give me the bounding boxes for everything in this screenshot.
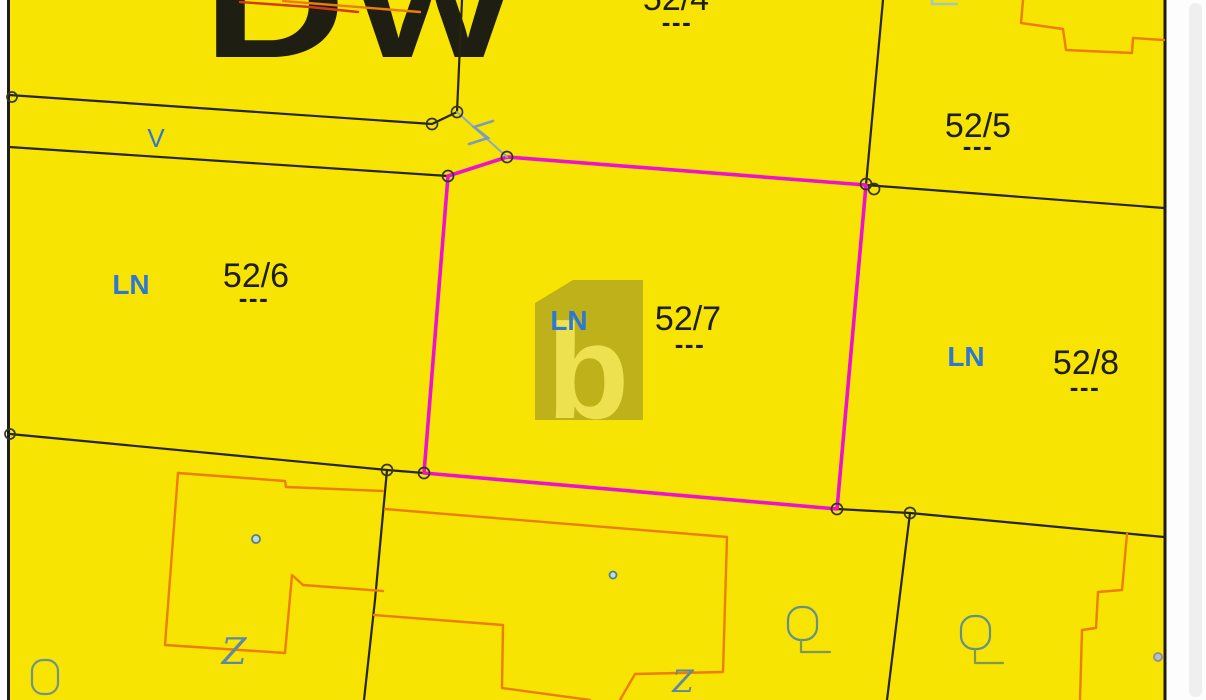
parcel-landuse-52-8: LN — [947, 341, 984, 372]
sheet-border-left — [7, 0, 10, 700]
sheet-border-right — [1164, 0, 1167, 700]
parcel-separator-52-4: --- — [662, 7, 692, 37]
culvert-z-symbol: Z — [220, 632, 247, 673]
land-use-dw-label: Dw — [203, 0, 521, 89]
culvert-z-symbol: Z — [671, 664, 694, 700]
map-viewer: b Dw 52/4 --- 52/5 --- LN 52/6 --- LN 52… — [0, 0, 1206, 700]
point-marker-gray-icon — [1154, 653, 1162, 661]
parcel-separator-52-6: --- — [239, 283, 269, 313]
parcel-separator-52-8: --- — [1070, 372, 1100, 402]
road-label-v: V — [147, 123, 165, 153]
parcel-landuse-52-7: LN — [550, 305, 587, 336]
parcel-separator-52-7: --- — [675, 329, 705, 359]
cadastral-map: b Dw 52/4 --- 52/5 --- LN 52/6 --- LN 52… — [0, 0, 1206, 700]
point-marker-icon — [610, 572, 617, 579]
parcel-separator-52-5: --- — [963, 131, 993, 161]
point-marker-icon — [252, 535, 260, 543]
parcel-landuse-52-6: LN — [112, 269, 149, 300]
scrollbar[interactable] — [1189, 3, 1202, 697]
